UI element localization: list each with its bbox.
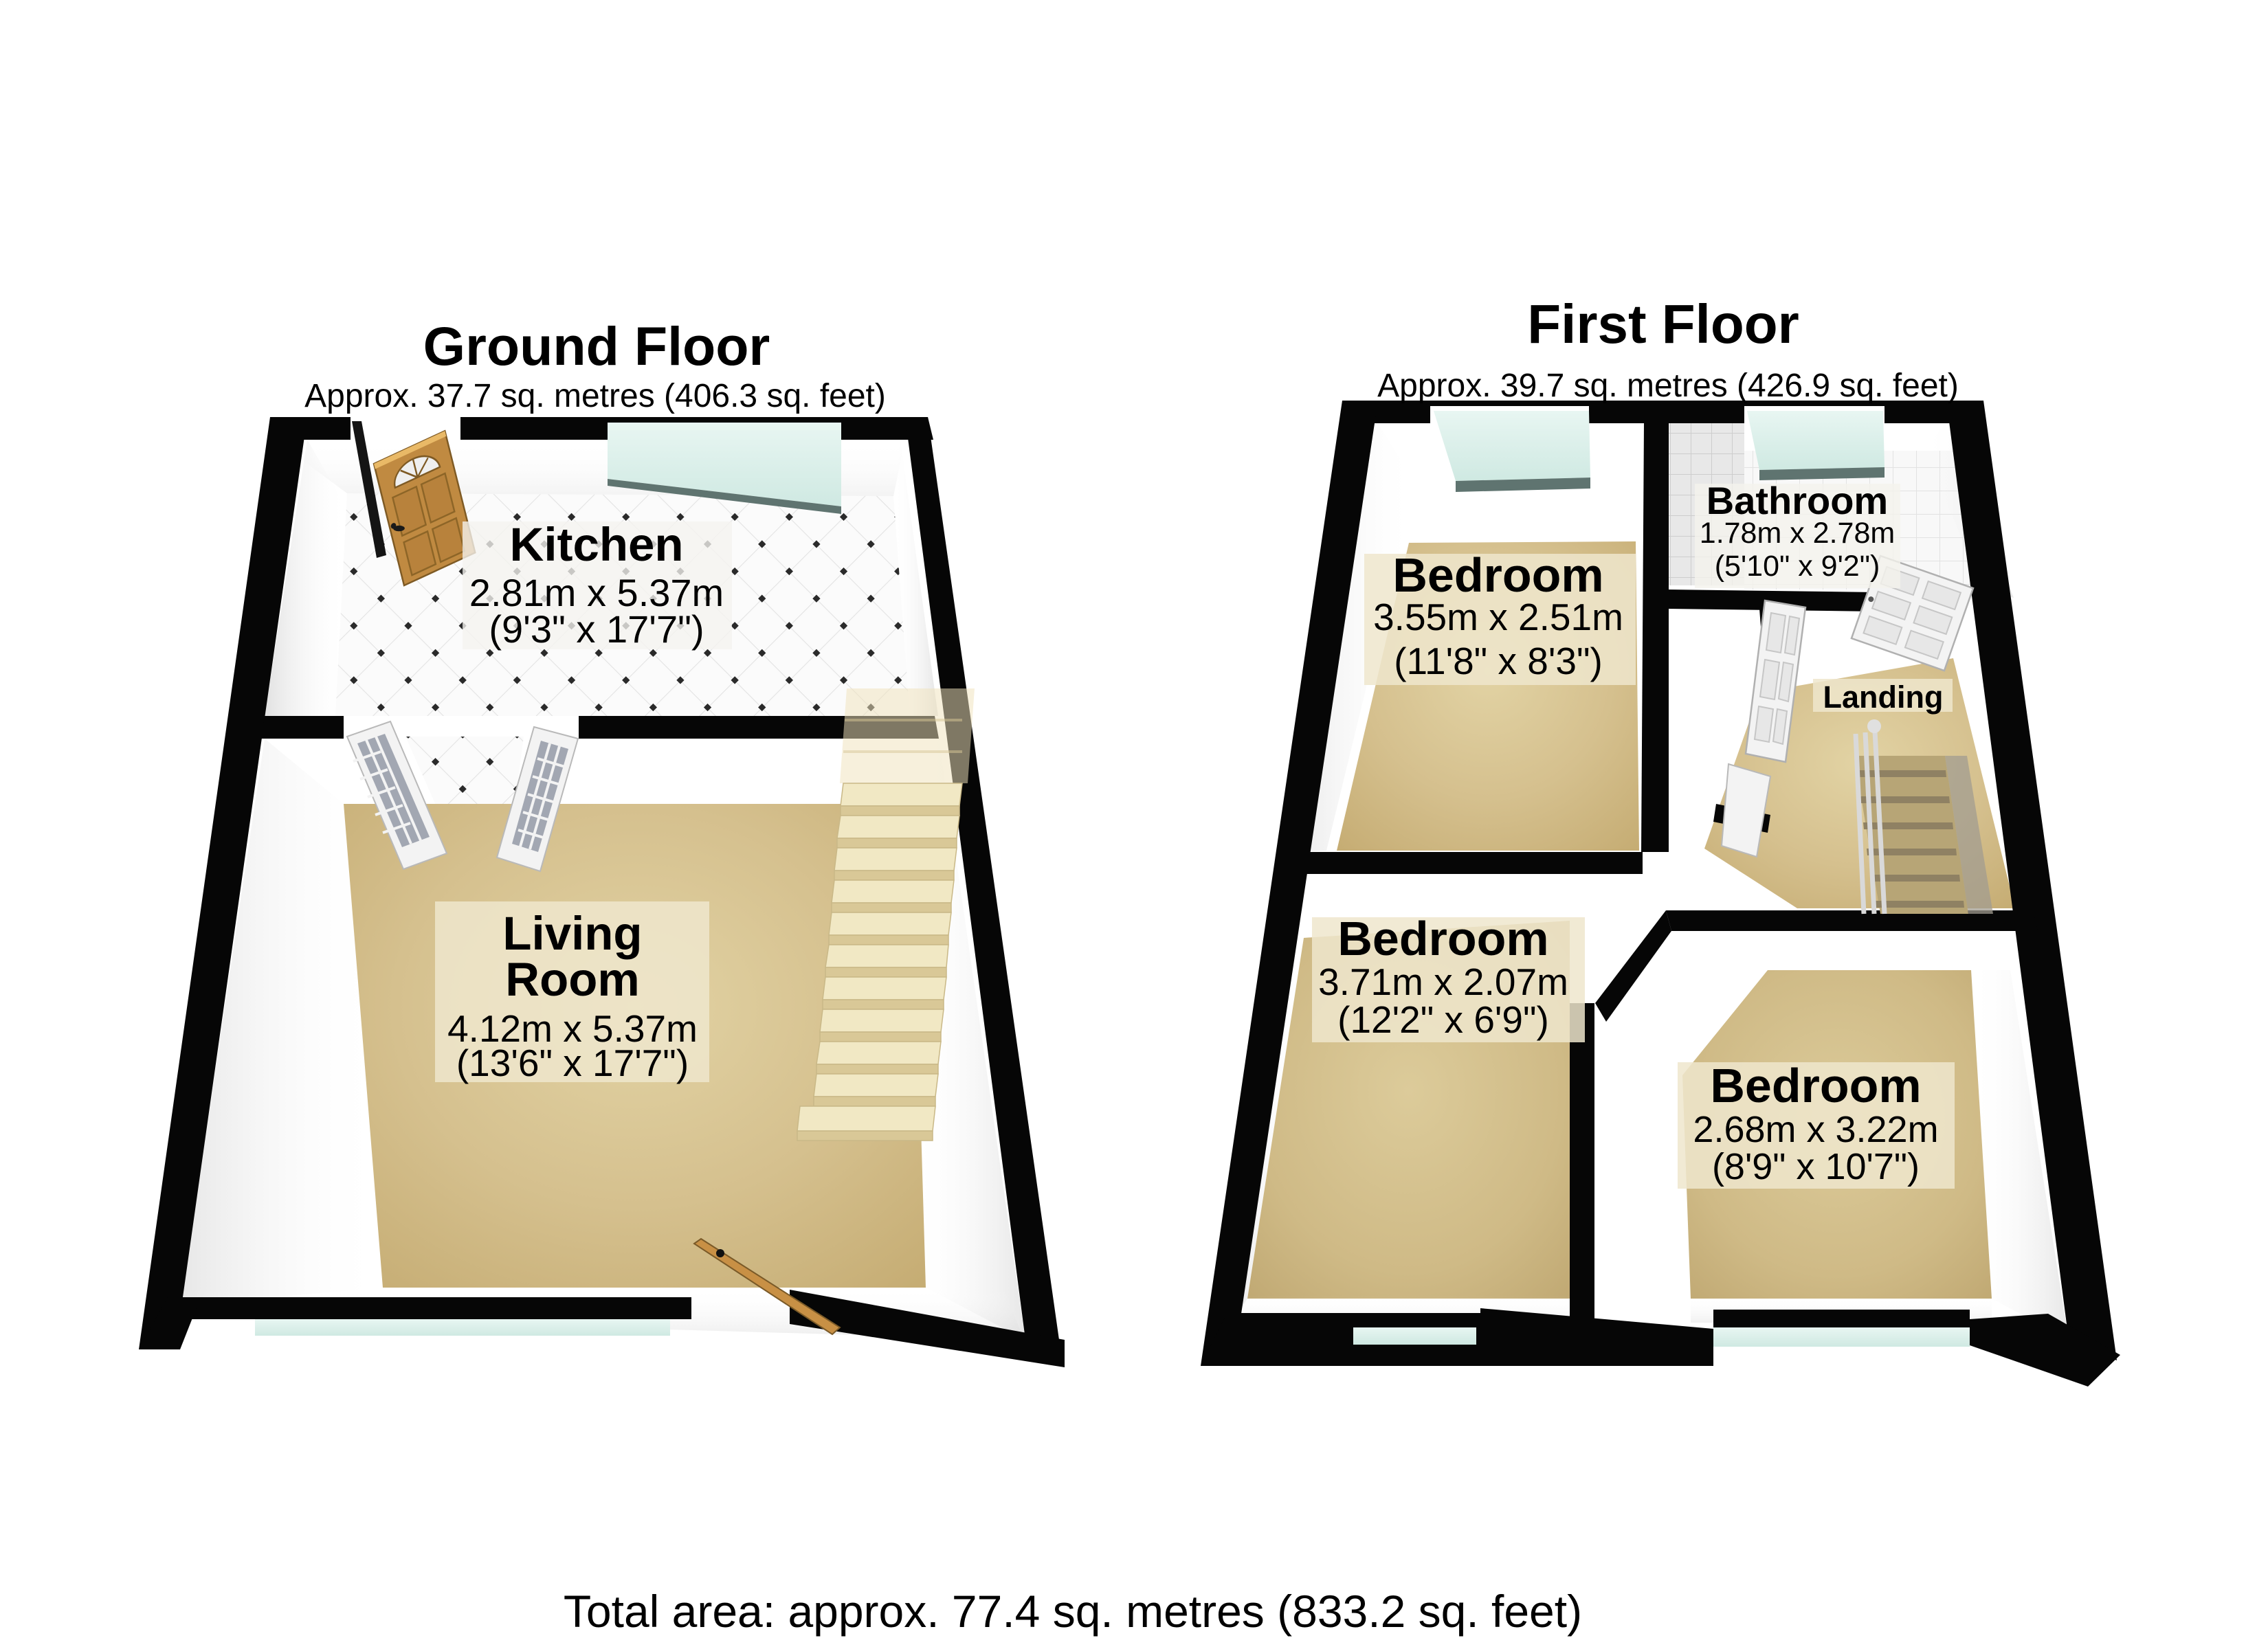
svg-text:3.55m x 2.51m: 3.55m x 2.51m [1373,596,1623,638]
svg-text:Total area: approx. 77.4 sq. m: Total area: approx. 77.4 sq. metres (833… [564,1586,1582,1637]
svg-text:(9'3" x 17'7"): (9'3" x 17'7") [489,607,704,651]
svg-text:Bedroom: Bedroom [1337,912,1548,965]
svg-text:(12'2" x 6'9"): (12'2" x 6'9") [1337,998,1549,1041]
svg-text:(13'6" x 17'7"): (13'6" x 17'7") [456,1042,689,1084]
svg-text:Living: Living [502,907,642,960]
svg-text:(8'9" x 10'7"): (8'9" x 10'7") [1712,1146,1920,1187]
svg-text:Landing: Landing [1823,680,1944,715]
svg-text:First Floor: First Floor [1527,293,1799,355]
svg-text:Bedroom: Bedroom [1392,548,1603,602]
svg-text:(5'10" x 9'2"): (5'10" x 9'2") [1715,550,1880,583]
svg-text:(11'8" x 8'3"): (11'8" x 8'3") [1394,640,1603,682]
svg-text:Room: Room [505,953,639,1006]
svg-text:Ground Floor: Ground Floor [423,315,770,377]
svg-text:1.78m x 2.78m: 1.78m x 2.78m [1700,517,1895,550]
svg-text:2.68m x 3.22m: 2.68m x 3.22m [1693,1109,1938,1150]
svg-text:Kitchen: Kitchen [509,518,683,571]
svg-text:Approx. 37.7 sq. metres (406.3: Approx. 37.7 sq. metres (406.3 sq. feet) [304,378,886,414]
svg-text:Bathroom: Bathroom [1706,479,1888,522]
svg-text:Bedroom: Bedroom [1710,1059,1921,1112]
svg-text:Approx. 39.7 sq. metres (426.9: Approx. 39.7 sq. metres (426.9 sq. feet) [1377,368,1959,404]
svg-text:3.71m x 2.07m: 3.71m x 2.07m [1318,961,1568,1003]
